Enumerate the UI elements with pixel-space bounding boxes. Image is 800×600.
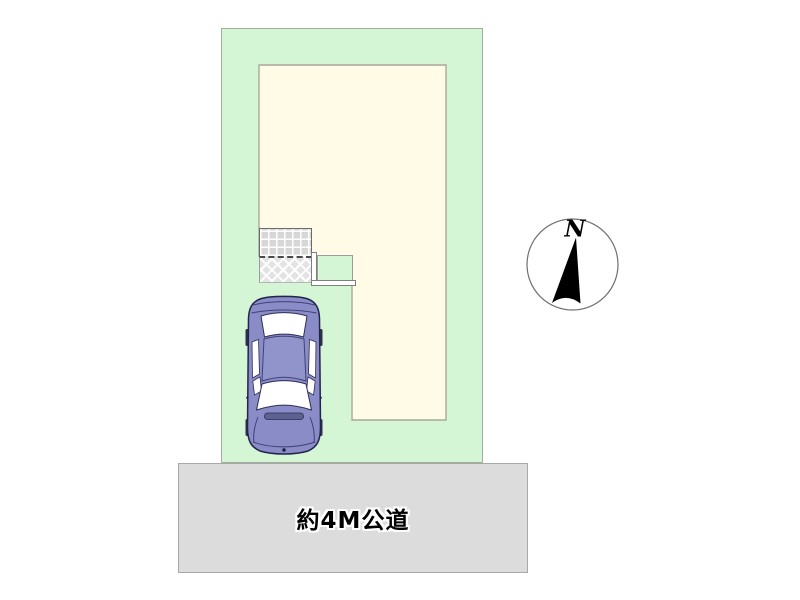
car-side-window: [252, 340, 260, 379]
entrance-tiles-icon: [259, 228, 312, 256]
car-cowl-vent: [265, 413, 304, 420]
car-side-window: [309, 340, 317, 379]
north-label: N: [563, 216, 586, 243]
entrance-hatch-icon: [259, 256, 312, 283]
entrance-step-area: [317, 255, 353, 283]
road-area: 約4M公道: [178, 463, 528, 573]
car-icon: [245, 295, 323, 455]
road-label: 約4M公道: [297, 501, 410, 535]
site-plan-diagram: N 約4M公道: [0, 0, 800, 600]
car-windshield: [257, 381, 312, 410]
car-emblem: [282, 448, 285, 451]
car-rear-window: [261, 313, 307, 337]
car-roof: [262, 336, 306, 381]
compass-rose: N: [522, 214, 623, 315]
entrance-wall-horizontal: [311, 280, 356, 286]
